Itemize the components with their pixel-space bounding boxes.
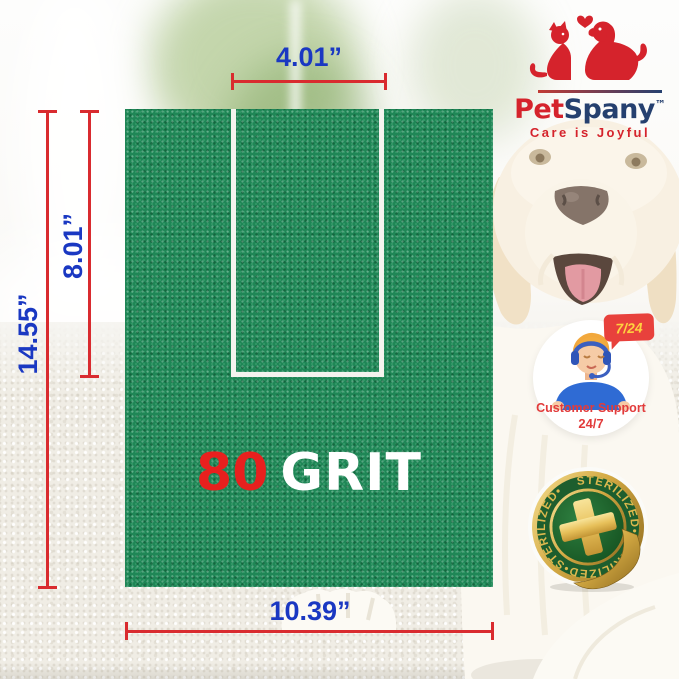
bubble-text: 7/24 <box>615 319 643 336</box>
support-text-line2: 24/7 <box>533 416 649 431</box>
sterilized-badge: STERILIZED•STERILIZED•STERILIZED• <box>526 463 652 593</box>
dim-cap <box>38 586 57 589</box>
logo-animals <box>505 12 675 84</box>
cat-silhouette-icon <box>530 21 571 80</box>
dog-silhouette-icon <box>585 22 647 81</box>
support-text-line1: Customer Support <box>533 401 649 415</box>
product-image: 80GRIT 4.01” 14.55” 8.01” 10.39” <box>0 0 679 679</box>
heart-icon <box>577 16 593 28</box>
dim-cap <box>231 73 234 90</box>
speech-bubble-7-24: 7/24 <box>604 313 655 342</box>
grit-number: 80 <box>196 443 268 503</box>
notch-outline-left <box>231 109 236 377</box>
dim-line-top-width <box>233 80 385 83</box>
sandpaper-sheet: 80GRIT <box>125 109 493 587</box>
dim-label-notch-depth: 8.01” <box>57 176 89 316</box>
brand-name-spany: Spany <box>564 94 655 125</box>
dim-line-panel-height <box>46 112 49 588</box>
logo-underline <box>538 90 662 93</box>
brand-logo: PetSpany™ Care is Joyful <box>505 12 675 140</box>
dim-cap <box>38 110 57 113</box>
notch-outline-right <box>379 109 384 377</box>
trademark-symbol: ™ <box>655 98 666 111</box>
dog-head <box>486 119 679 325</box>
dim-line-panel-width <box>127 630 493 633</box>
dim-label-panel-width: 10.39” <box>127 596 493 627</box>
brand-name-pet: Pet <box>514 94 564 125</box>
dim-cap <box>384 73 387 90</box>
dim-cap <box>80 110 99 113</box>
dim-label-panel-height: 14.55” <box>12 264 44 404</box>
grit-word: GRIT <box>280 443 422 503</box>
notch-outline-bottom <box>231 372 384 377</box>
grit-text: 80GRIT <box>125 447 493 499</box>
dim-label-top-width: 4.01” <box>231 42 387 73</box>
brand-name: PetSpany™ <box>505 95 675 125</box>
dim-cap <box>80 375 99 378</box>
brand-tagline: Care is Joyful <box>505 125 675 140</box>
